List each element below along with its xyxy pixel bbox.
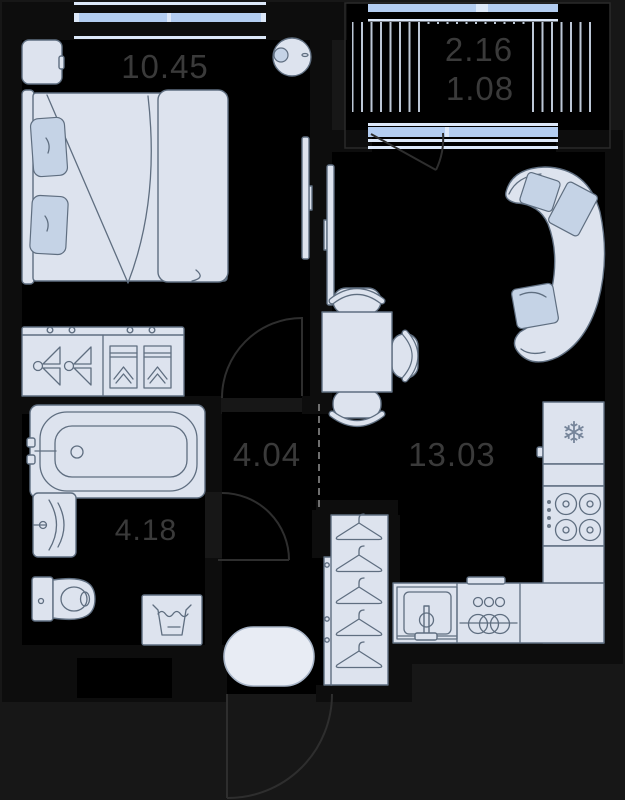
chair-right: [392, 333, 418, 379]
nightstand-handle: [59, 56, 64, 69]
wall-bathroom-right-lower: [205, 558, 222, 650]
wall-closet-left: [312, 510, 331, 558]
living-kitchen-area-label: 13.03: [408, 436, 496, 473]
washing-machine-body: [142, 595, 202, 645]
closet-knob: [325, 563, 329, 567]
bedroom-area-label: 10.45: [121, 48, 209, 85]
floor-plan-page: 2.16 1.08 10.45: [0, 0, 625, 800]
bathroom-area-label: 4.18: [115, 514, 177, 547]
chair-bottom: [332, 390, 382, 424]
hallway-living-opening: [302, 412, 332, 512]
dining-table: [322, 312, 392, 392]
toilet: [32, 577, 95, 621]
window-glass: [368, 127, 558, 137]
window-mullion: [167, 13, 171, 22]
window-frame: [368, 123, 558, 126]
sofa-pillow: [511, 283, 559, 330]
bedroom-wardrobe: [22, 327, 184, 396]
lamp-bulb: [274, 48, 288, 62]
tv-screen: [302, 137, 309, 259]
pillow: [30, 195, 69, 255]
balcony-window-top: [368, 4, 558, 12]
floor-plan: 2.16 1.08 10.45: [0, 0, 625, 800]
window-cap: [74, 13, 79, 22]
toilet-bowl: [53, 579, 95, 620]
nightstand: [22, 40, 64, 84]
door-swing-arc: [227, 694, 332, 798]
closet-knob: [325, 638, 329, 642]
chair-seat: [333, 390, 381, 418]
washing-machine: [142, 595, 202, 645]
wall-bottom-right: [390, 643, 623, 664]
wall-bedroom-bottom-right: [302, 396, 332, 414]
wall-left: [2, 2, 22, 702]
window-frame: [368, 139, 558, 142]
wardrobe-knob: [127, 327, 133, 333]
balcony-area-total-label: 2.16: [445, 31, 513, 68]
balcony-area-counted-label: 1.08: [446, 70, 514, 107]
balcony-sill-line: [368, 19, 558, 22]
wall-niche: [77, 658, 172, 698]
counter-handle: [467, 577, 505, 584]
wall-right: [605, 130, 623, 664]
washbasin: [33, 493, 76, 557]
bathtub-tap-knob: [27, 438, 35, 447]
bathtub-tap-knob: [27, 455, 35, 464]
window-frame: [74, 36, 266, 39]
wardrobe-knob: [69, 327, 75, 333]
window-mullion: [476, 4, 488, 12]
entrance-door: [227, 694, 332, 798]
kitchen-counter-segment: [543, 464, 604, 486]
fridge-handle: [537, 447, 543, 457]
bed-duvet-fold: [158, 90, 228, 282]
rug: [224, 627, 314, 686]
tv-screen: [327, 165, 334, 305]
window-cap: [261, 13, 266, 22]
floor-lamp: [273, 38, 311, 76]
nightstand-top: [22, 40, 62, 84]
chair-top: [332, 288, 382, 314]
wall-closet-bottom: [316, 685, 412, 702]
window-glass: [368, 4, 558, 12]
sink-faucet-plate: [415, 633, 437, 640]
closet-knob: [325, 617, 329, 621]
hallway-area-label: 4.04: [233, 436, 301, 473]
wardrobe-knob: [47, 327, 53, 333]
sink-faucet: [424, 606, 429, 634]
window-frame: [74, 2, 266, 5]
bed-headboard: [22, 90, 34, 284]
snowflake-icon: ❄: [561, 416, 586, 451]
bathtub: [27, 405, 205, 498]
window-mullion: [445, 127, 449, 137]
wardrobe-knob: [149, 327, 155, 333]
wall-bathroom-right-upper: [205, 414, 222, 492]
bed: [22, 90, 228, 284]
hall-closet: [324, 514, 388, 685]
stove: [543, 486, 604, 546]
